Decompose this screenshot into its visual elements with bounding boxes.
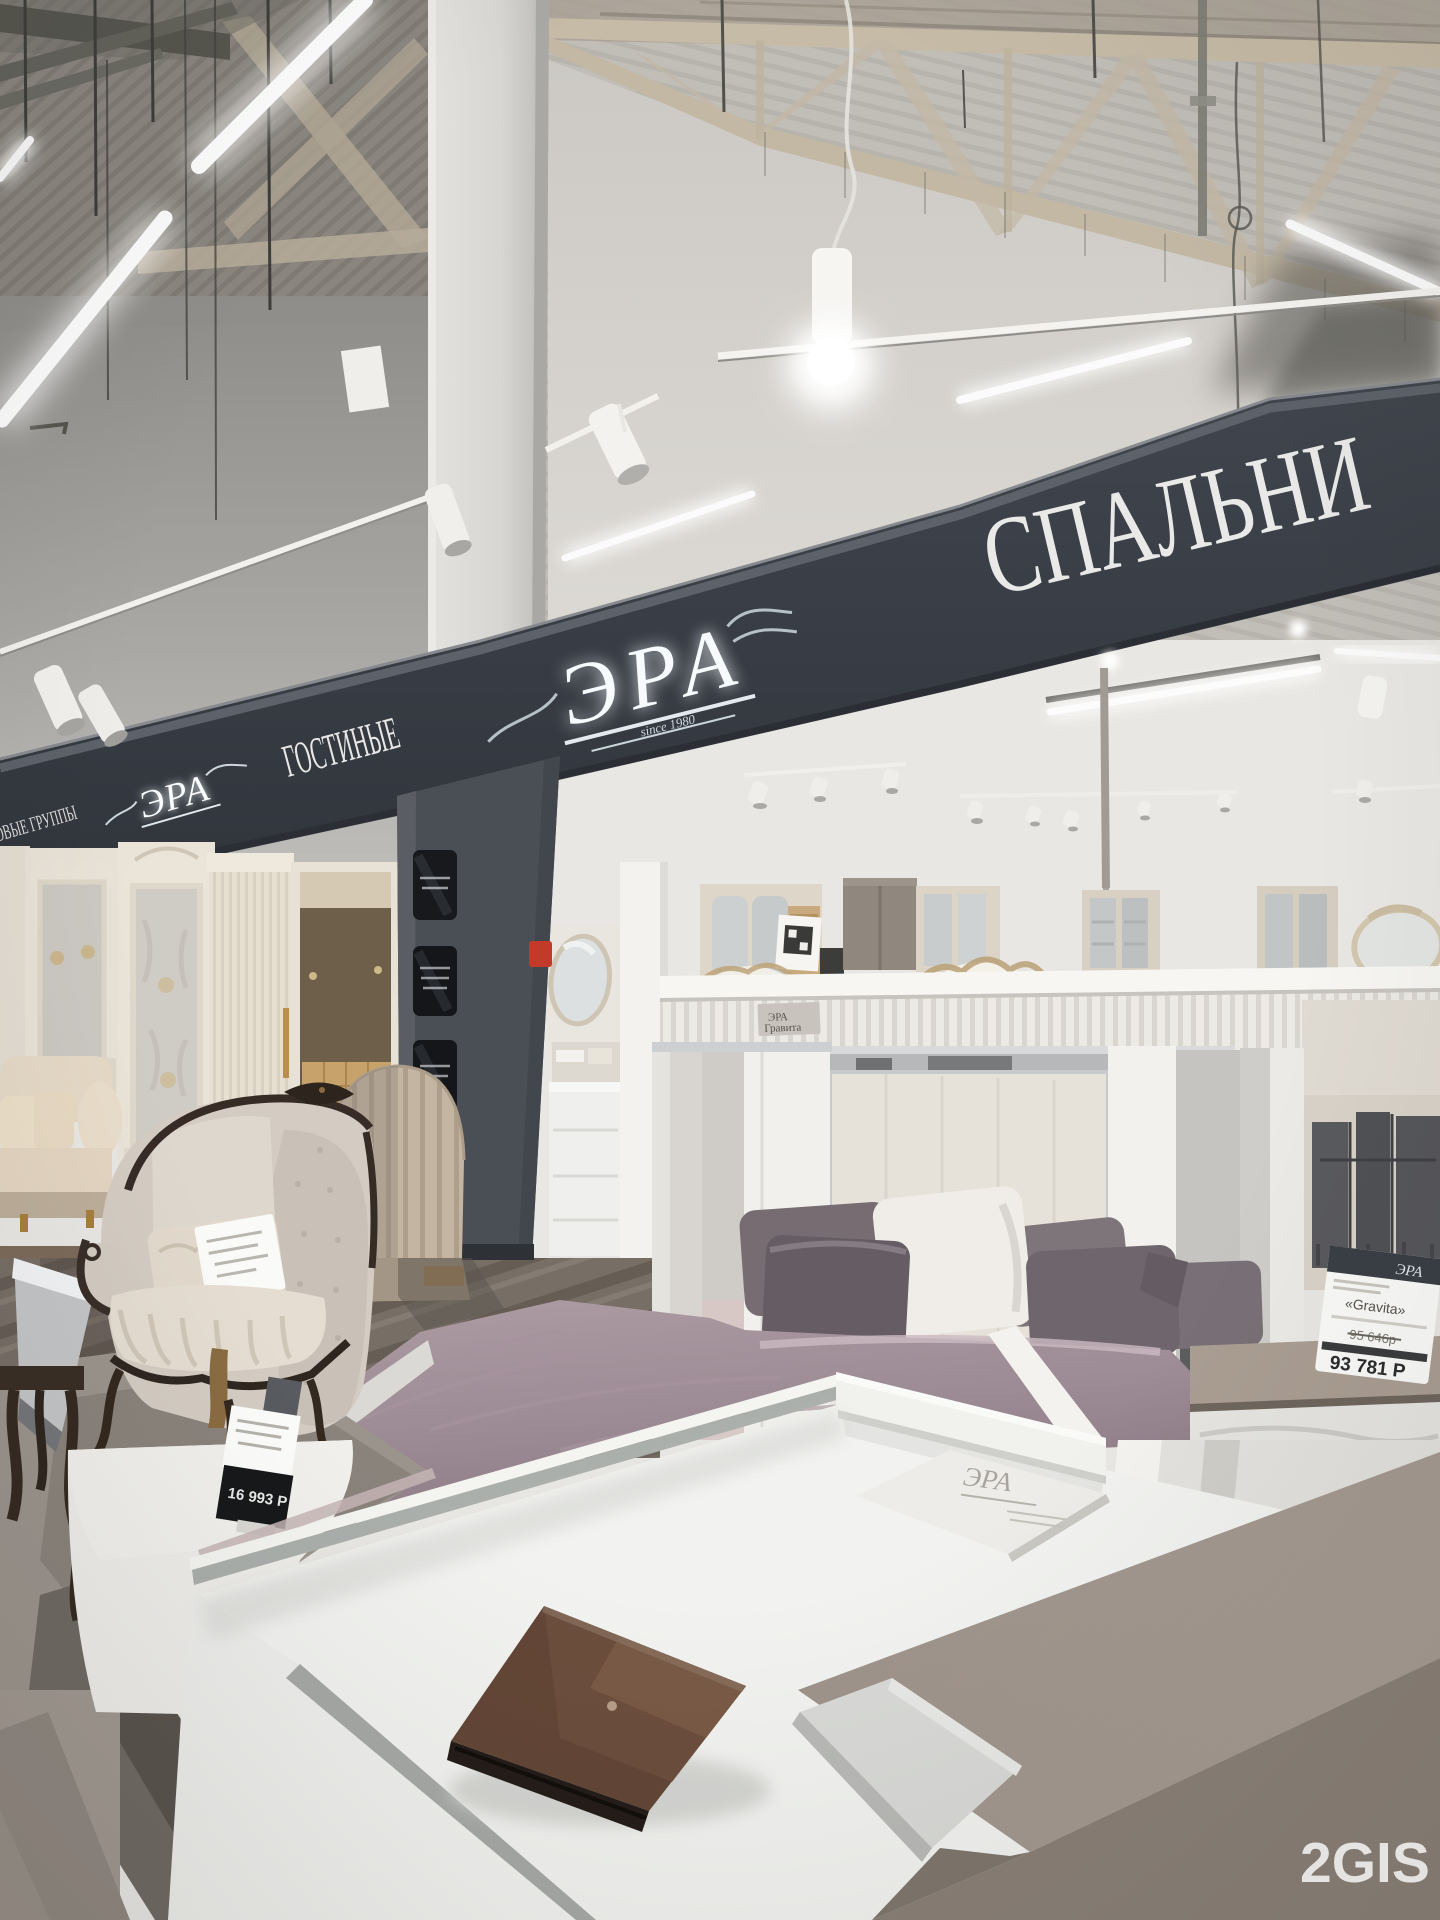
svg-text:2GIS: 2GIS: [1300, 1831, 1430, 1895]
